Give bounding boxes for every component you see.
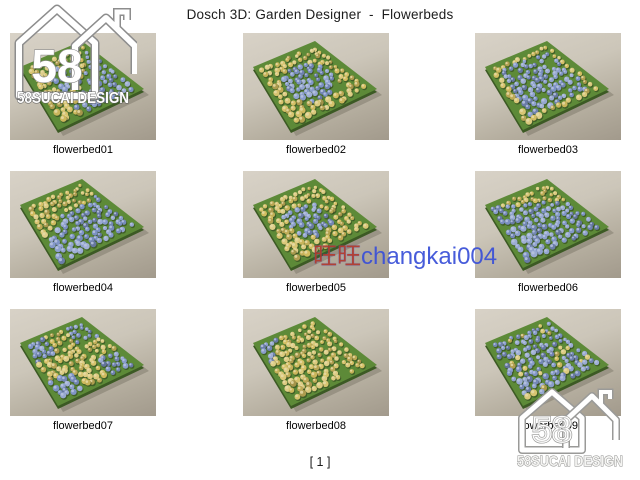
flowerbed-thumbnail-07[interactable] <box>10 309 156 416</box>
flowerbed-render <box>10 33 156 140</box>
flowerbed-label: flowerbed09 <box>475 420 621 432</box>
flowerbed-thumbnail-03[interactable] <box>475 33 621 140</box>
flowerbed-render <box>243 33 389 140</box>
flowerbed-label: flowerbed05 <box>243 282 389 294</box>
flowerbed-render <box>10 171 156 278</box>
flowerbed-render <box>243 171 389 278</box>
flowerbed-label: flowerbed03 <box>475 144 621 156</box>
flowerbed-thumbnail-06[interactable] <box>475 171 621 278</box>
flowerbed-render <box>475 309 621 416</box>
flowerbed-label: flowerbed06 <box>475 282 621 294</box>
flowerbed-label: flowerbed02 <box>243 144 389 156</box>
flowerbed-thumbnail-04[interactable] <box>10 171 156 278</box>
flowerbed-label: flowerbed07 <box>10 420 156 432</box>
flowerbed-render <box>475 171 621 278</box>
flowerbed-thumbnail-02[interactable] <box>243 33 389 140</box>
flowerbed-render <box>475 33 621 140</box>
page-number: [ 1 ] <box>0 455 640 469</box>
page-title: Dosch 3D: Garden Designer - Flowerbeds <box>0 7 640 22</box>
flowerbed-thumbnail-08[interactable] <box>243 309 389 416</box>
flowerbed-label: flowerbed08 <box>243 420 389 432</box>
flowerbed-label: flowerbed04 <box>10 282 156 294</box>
flowerbed-render <box>10 309 156 416</box>
flowerbed-render <box>243 309 389 416</box>
flowerbed-thumbnail-09[interactable] <box>475 309 621 416</box>
flowerbed-label: flowerbed01 <box>10 144 156 156</box>
flowerbed-thumbnail-05[interactable] <box>243 171 389 278</box>
flowerbed-thumbnail-01[interactable] <box>10 33 156 140</box>
